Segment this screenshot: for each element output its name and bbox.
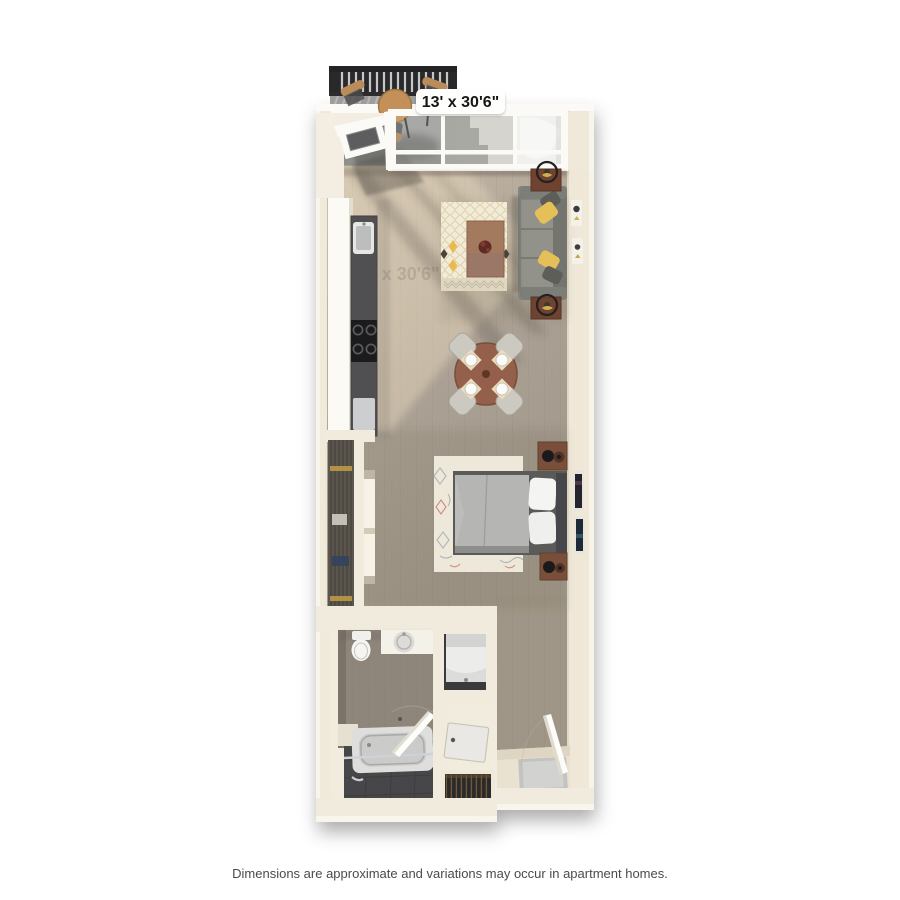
svg-text:Dimensions are approximate and: Dimensions are approximate and variation… — [232, 866, 668, 881]
svg-text:13' x 30'6": 13' x 30'6" — [422, 94, 499, 111]
